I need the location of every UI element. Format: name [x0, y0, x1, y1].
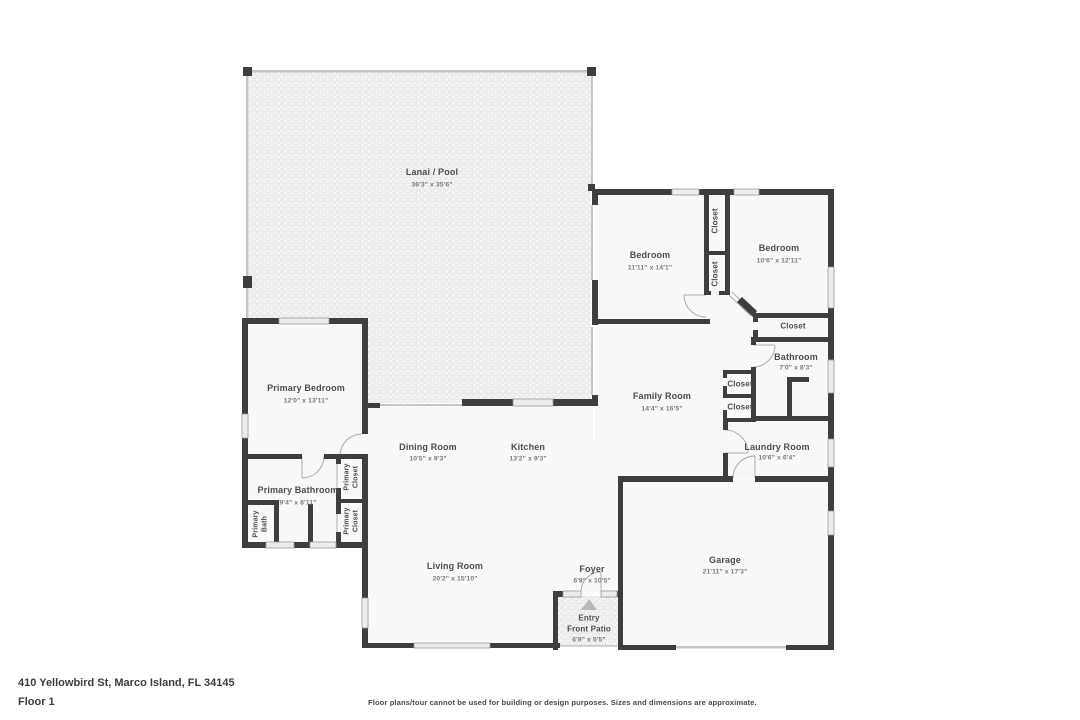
room-label-kitchen: Kitchen — [511, 443, 545, 453]
room-label-primary-closet-2: Primary Closet — [343, 501, 361, 541]
room-label-bedroom1: Bedroom — [630, 251, 671, 261]
room-label-primary-bedroom: Primary Bedroom — [267, 384, 345, 394]
room-label-foyer: Foyer — [579, 565, 604, 575]
room-dims-garage: 21'11" x 17'3" — [703, 568, 748, 575]
disclaimer-text: Floor plans/tour cannot be used for buil… — [368, 698, 757, 707]
room-label-entry: Entry — [578, 615, 599, 624]
room-label-dining: Dining Room — [399, 443, 457, 453]
room-label-laundry: Laundry Room — [744, 443, 809, 453]
room-label-bathroom: Bathroom — [774, 353, 818, 363]
room-label-closet-family-1: Closet — [727, 381, 752, 390]
room-label-closet-hall-bottom: Closet — [712, 261, 721, 286]
floorplan-drawing — [0, 0, 1080, 720]
room-dims-living: 20'2" x 15'10" — [432, 575, 477, 582]
floorplan-page: Lanai / Pool 36'3" x 35'6" Bedroom 11'11… — [0, 0, 1080, 720]
room-dims-laundry: 10'6" x 6'4" — [758, 454, 795, 461]
room-label-closet-bedroom2: Closet — [780, 323, 805, 332]
room-label-lanai: Lanai / Pool — [406, 168, 458, 178]
room-dims-primary-bathroom: 9'4" x 8'11" — [280, 499, 317, 506]
room-dims-primary-bedroom: 12'0" x 13'11" — [284, 397, 329, 404]
room-dims-dining: 10'5" x 9'3" — [409, 455, 446, 462]
room-dims-family-room: 14'4" x 16'5" — [641, 405, 682, 412]
room-dims-foyer: 6'8" x 10'5" — [573, 577, 610, 584]
room-label-family-room: Family Room — [633, 392, 691, 402]
floor-label: Floor 1 — [18, 696, 55, 708]
room-dims-bedroom1: 11'11" x 14'1" — [628, 264, 672, 271]
room-dims-bedroom2: 10'6" x 12'11" — [757, 257, 802, 264]
room-label-closet-hall-top: Closet — [712, 208, 721, 233]
room-dims-bathroom: 7'0" x 8'3" — [779, 364, 812, 371]
room-dims-lanai: 36'3" x 35'6" — [411, 181, 452, 188]
room-label-closet-family-2: Closet — [727, 404, 752, 413]
room-dims-kitchen: 13'2" x 9'3" — [509, 455, 546, 462]
room-label-primary-bathroom: Primary Bathroom — [258, 486, 339, 496]
property-address: 410 Yellowbird St, Marco Island, FL 3414… — [18, 677, 235, 689]
room-label-front-patio: Front Patio — [567, 626, 611, 635]
room-label-bedroom2: Bedroom — [759, 244, 800, 254]
room-label-primary-bath: Primary Bath — [252, 504, 270, 544]
north-arrow-icon — [581, 599, 597, 610]
room-label-primary-closet-1: Primary Closet — [343, 457, 361, 497]
room-dims-entry: 6'8" x 5'5" — [572, 636, 605, 643]
room-label-living: Living Room — [427, 562, 483, 572]
room-label-garage: Garage — [709, 556, 741, 566]
